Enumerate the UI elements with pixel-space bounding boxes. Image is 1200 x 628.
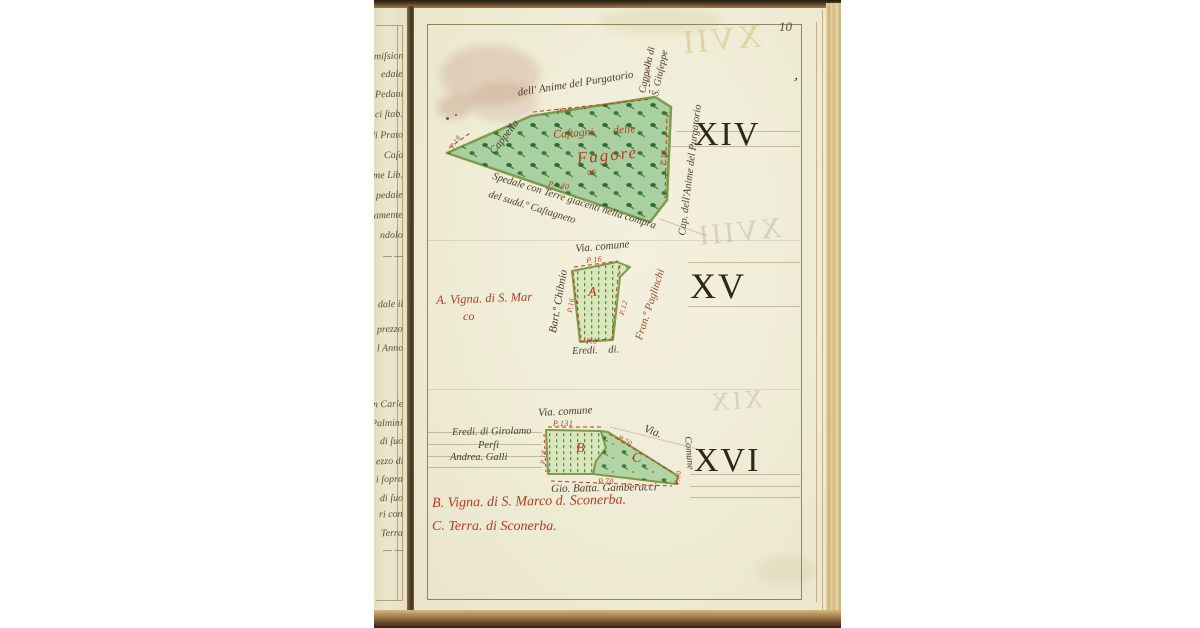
paper-edge-line: [822, 10, 823, 614]
xvi-measure-left: P.18: [540, 450, 548, 465]
page-fragment: me Lib.: [374, 171, 403, 182]
xv-measure-bottom: P.9: [586, 338, 597, 346]
xvi-caption-c: C. Terra. di Sconerba.: [432, 520, 557, 534]
xv-measure-top: P.16: [586, 255, 603, 265]
page-fragment: dale il: [378, 300, 404, 311]
page-fragment: ndolo: [380, 231, 403, 242]
guideline: [428, 467, 542, 468]
page-fragment: di ſuo: [380, 494, 403, 505]
xvi-measure-top: P.131: [553, 420, 573, 428]
xv-caption-line2: co: [463, 310, 474, 322]
page-fragment: n Carle: [374, 400, 403, 411]
xvi-measure-bottom: P.70: [598, 478, 614, 486]
page-fragment: Caſa: [383, 151, 403, 162]
strip-margin-line: [376, 600, 403, 601]
bleedthrough-numeral-xvii: XVII: [679, 21, 763, 61]
page-fragment: pedale: [376, 191, 403, 202]
xvi-road-label-right2: Comune: [682, 436, 695, 470]
page-fragment: — —: [383, 252, 404, 263]
page-fragment: prezzo: [377, 325, 403, 336]
guideline: [688, 306, 800, 307]
manuscript-scan: miſsion edale Pedani ci ſtab. di Prato C…: [0, 0, 1200, 628]
page-fragment: Terra: [381, 529, 403, 540]
xiv-inner-flourish: ∞: [586, 164, 597, 178]
xv-owner-bottom: Eredi. di.: [572, 345, 619, 357]
page-fragment: di Prato: [374, 131, 403, 142]
guideline: [688, 262, 800, 263]
xvi-parcel-letter-c: C: [632, 452, 641, 466]
paper-edge-line: [816, 22, 817, 602]
xv-parcel-letter: A: [588, 286, 597, 300]
page-fragment: miſsion: [374, 52, 403, 63]
page-fragment: lamente: [374, 211, 403, 222]
xvi-owner-left-line1: Eredi. di Girolamo: [452, 427, 532, 439]
page-fragment: — —: [383, 546, 404, 557]
guideline: [690, 486, 800, 487]
page-fragment: di ſuo: [380, 437, 403, 448]
page-fragment: ezzo di: [375, 457, 403, 468]
page-fragment: Palmini: [374, 419, 403, 430]
page-frame: [427, 24, 802, 600]
bleedthrough-numeral-xix: XIX: [707, 386, 764, 416]
page-fragment: i ſopra: [376, 475, 403, 486]
roman-numeral-xiv: XIV: [694, 118, 760, 152]
guideline: [690, 497, 800, 498]
roman-numeral-xv: XV: [690, 268, 746, 304]
xiv-measure-right: P.14: [659, 149, 668, 165]
xvi-owner-left-line3: Andrea. Galli: [450, 453, 507, 464]
page-fragment: l Anno: [377, 344, 403, 355]
strip-margin-line: [402, 25, 403, 600]
strip-margin-line: [397, 25, 398, 600]
book-spine: [407, 6, 414, 614]
page-fragment: ri con: [379, 510, 403, 521]
page-number: 10: [779, 20, 792, 33]
xvi-owner-left-line2: Perſi: [478, 441, 499, 452]
page-fragment: ci ſtab.: [375, 110, 403, 121]
xv-caption-line1: A. Vigna. di S. Mar: [436, 291, 532, 307]
page-fore-edge: [826, 3, 841, 623]
page-fragment: edale: [381, 70, 403, 81]
book-bottom-edge: [374, 610, 841, 628]
roman-numeral-xvi: XVI: [694, 444, 760, 478]
xvi-parcel-letter-b: B: [576, 442, 585, 456]
page-fragment: Pedani: [375, 90, 404, 101]
strip-margin-line: [376, 25, 403, 26]
